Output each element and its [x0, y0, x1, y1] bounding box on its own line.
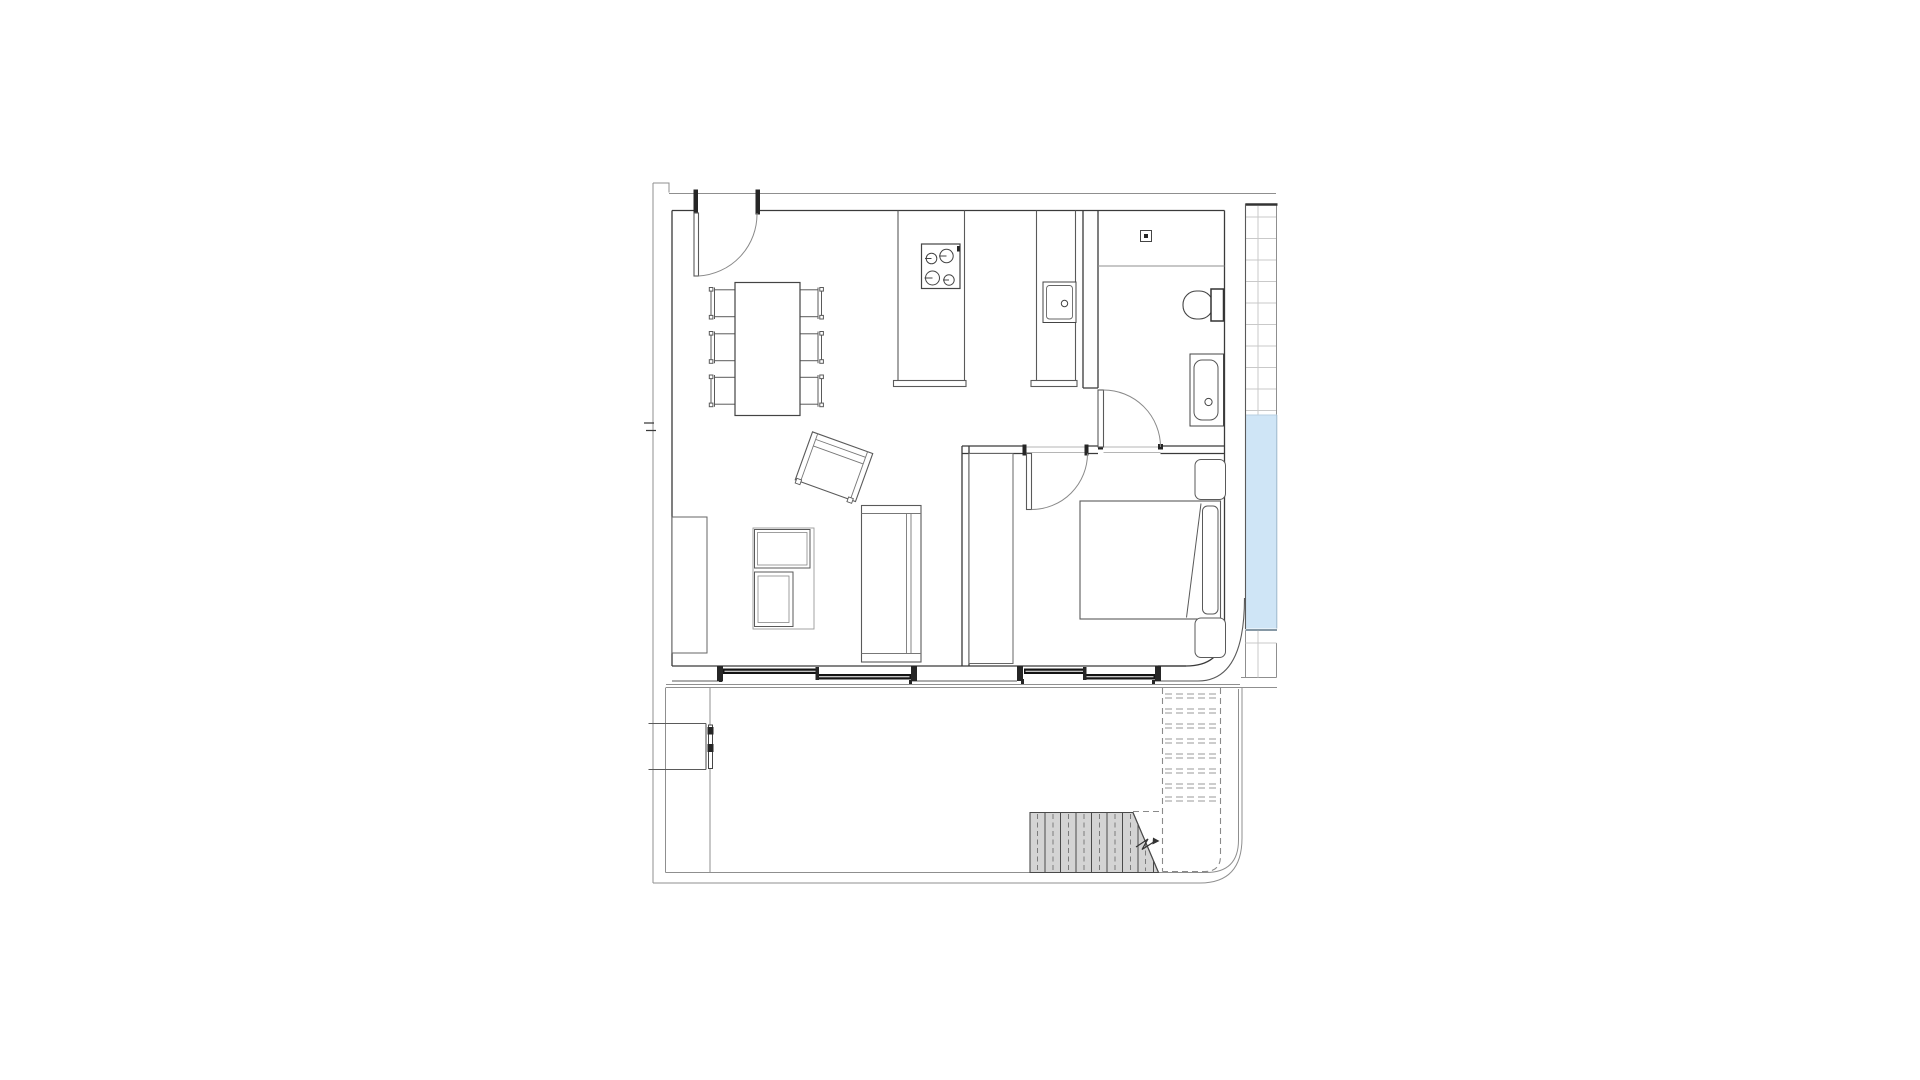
- swimming-pool: [1246, 415, 1278, 630]
- shower-drain: [1141, 231, 1152, 242]
- terrace-parapet-outer: [653, 688, 1242, 884]
- sliding-window-bedroom: [1017, 666, 1161, 685]
- entry-door: [694, 213, 757, 276]
- dining-chairs-left: [709, 288, 735, 407]
- toilet: [1183, 289, 1224, 321]
- living-room: [672, 432, 921, 662]
- dining-chairs-right: [800, 288, 824, 407]
- pool-end-tiles: [1241, 631, 1277, 678]
- entry-door-jamb-right: [756, 190, 761, 215]
- floor-plan-drawing: [0, 0, 1920, 1080]
- sofa: [862, 506, 922, 663]
- terrace-parapet-inner: [666, 689, 1239, 873]
- sideboard: [672, 517, 707, 653]
- bathroom-door: [1098, 390, 1161, 447]
- bedroom: [969, 454, 1226, 664]
- dining-table: [735, 283, 800, 416]
- kitchen-island: [894, 211, 967, 387]
- basin-faucet: [1205, 398, 1212, 405]
- armchair: [794, 432, 873, 504]
- wardrobe: [969, 454, 1013, 664]
- sliding-window-living: [717, 666, 917, 685]
- nightstand-bottom: [1195, 618, 1226, 658]
- nightstand-top: [1195, 460, 1226, 500]
- exterior-stairs: [1030, 813, 1160, 873]
- double-bed: [1080, 501, 1221, 619]
- dining-area: [709, 283, 823, 416]
- tile-strip: [1246, 205, 1278, 416]
- boundary-break-ticks: [644, 423, 656, 431]
- terrace-gate: [649, 724, 714, 770]
- bathroom: [1098, 231, 1225, 427]
- kitchen: [894, 211, 1078, 387]
- faucet: [1061, 300, 1067, 306]
- sink: [1043, 282, 1076, 323]
- entry-door-jamb-left: [694, 190, 699, 215]
- tv-unit: [753, 528, 814, 629]
- stair-arrow-head: [1153, 838, 1160, 845]
- kitchen-counter: [1031, 211, 1077, 387]
- cooktop: [922, 244, 961, 289]
- bedroom-door: [1027, 454, 1088, 510]
- pillow: [1203, 506, 1219, 614]
- floor-plan-canvas: [0, 0, 1920, 1080]
- washbasin: [1190, 354, 1224, 426]
- terrace: [649, 685, 1278, 884]
- pool-deck: [1241, 205, 1278, 678]
